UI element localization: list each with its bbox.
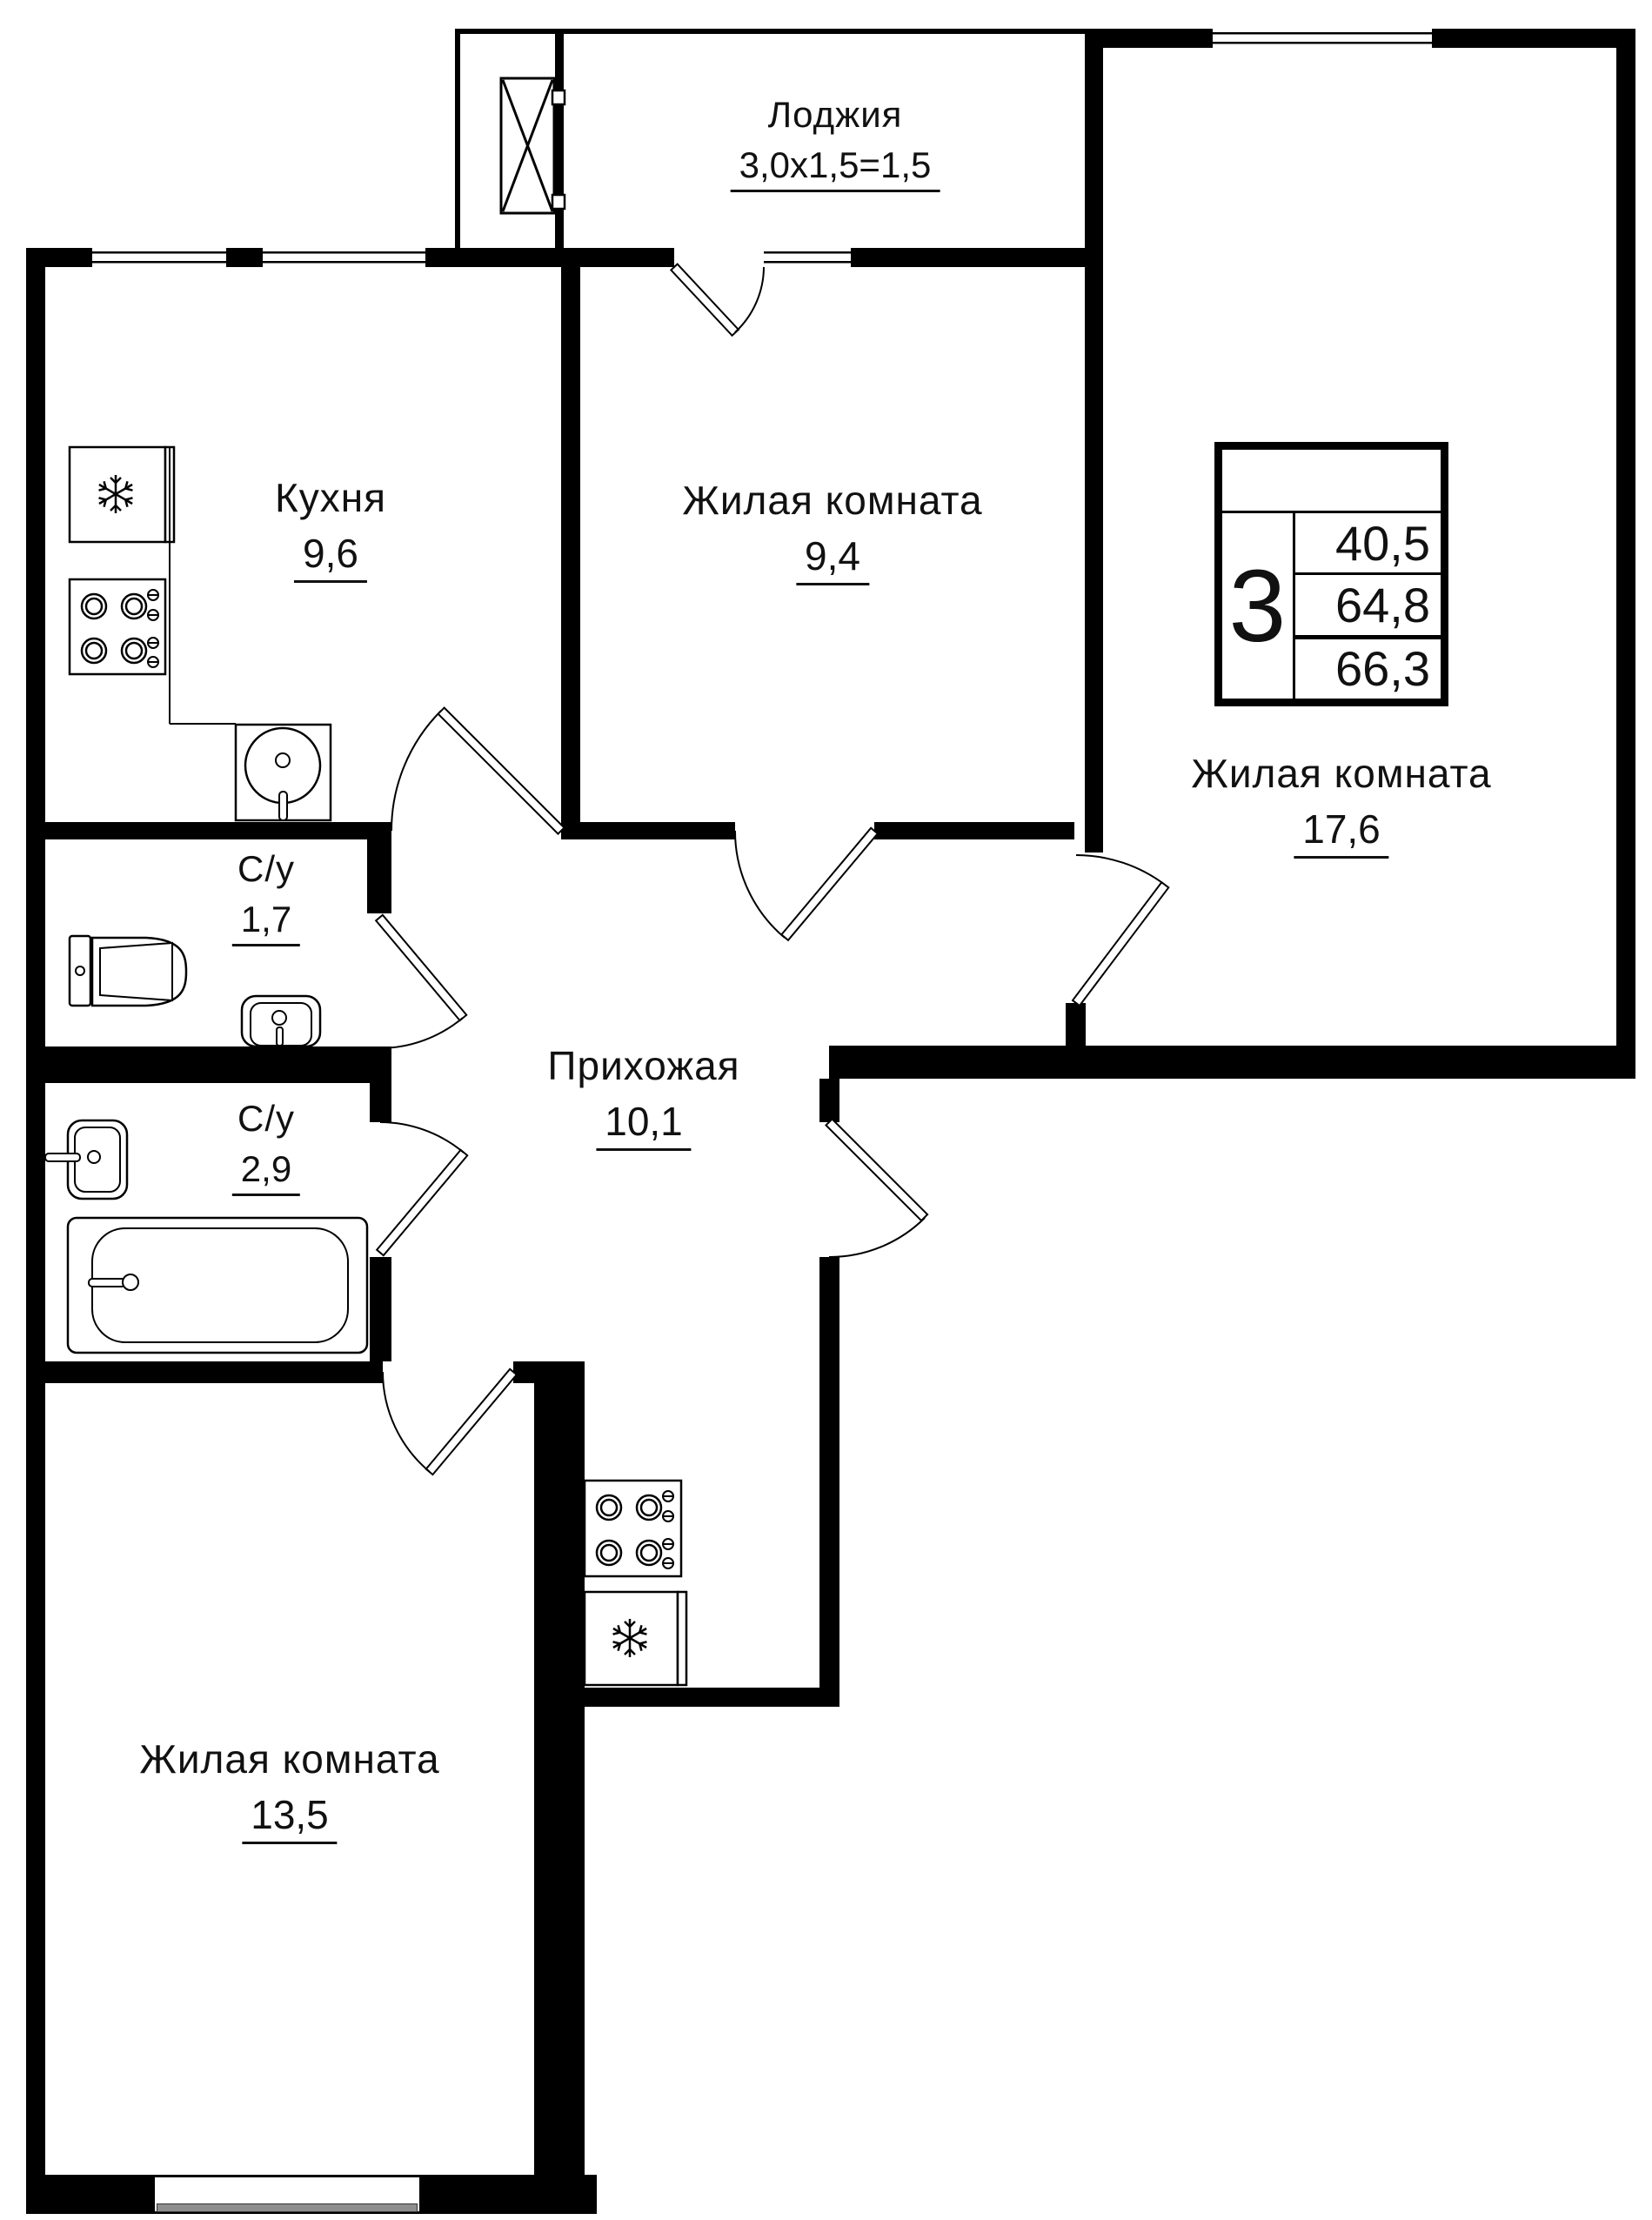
room-name: С/у	[232, 848, 300, 890]
room-label-wc-small: С/у 1,7	[232, 848, 300, 946]
door-leaf	[376, 264, 1168, 1475]
room-name: Лоджия	[731, 94, 940, 136]
kitchen-counter-line	[170, 447, 236, 724]
stats-living-area: 40,5	[1295, 513, 1441, 572]
room-area: 3,0х1,5=1,5	[731, 144, 940, 192]
room-label-hallway: Прихожая 10,1	[547, 1042, 739, 1151]
room-name: Жилая комната	[682, 477, 982, 524]
stats-total-area: 66,3	[1295, 635, 1441, 699]
room-area: 9,6	[294, 530, 367, 583]
room-label-wc-big: С/у 2,9	[232, 1098, 300, 1196]
stats-bottom: 3 40,5 64,8 66,3	[1222, 513, 1441, 699]
room-area: 13,5	[242, 1791, 338, 1844]
room-area: 9,4	[796, 532, 869, 585]
stats-room-count: 3	[1222, 513, 1295, 699]
stats-top-cell	[1222, 450, 1441, 513]
fridge-icon	[70, 447, 174, 542]
apartment-stats: 3 40,5 64,8 66,3	[1214, 442, 1448, 706]
room-area: 2,9	[232, 1148, 300, 1196]
shaft-icon	[501, 78, 565, 213]
room-label-loggia: Лоджия 3,0х1,5=1,5	[731, 94, 940, 192]
room-name: Кухня	[275, 474, 386, 521]
room-label-living-bottom: Жилая комната 13,5	[139, 1735, 439, 1844]
room-label-kitchen: Кухня 9,6	[275, 474, 386, 583]
stats-areas: 40,5 64,8 66,3	[1295, 513, 1441, 699]
room-name: Жилая комната	[1191, 750, 1491, 797]
room-label-living-top: Жилая комната 9,4	[682, 477, 982, 585]
stove-icon	[70, 579, 165, 674]
room-name: С/у	[232, 1098, 300, 1140]
room-name: Жилая комната	[139, 1735, 439, 1782]
room-area: 10,1	[596, 1098, 692, 1151]
room-area: 17,6	[1294, 806, 1389, 859]
fridge-icon	[585, 1592, 686, 1685]
door-arc	[379, 267, 1165, 1472]
bathtub-icon	[68, 1218, 367, 1353]
stove-icon	[585, 1481, 681, 1576]
floor-plan: Лоджия 3,0х1,5=1,5 Кухня 9,6 Жилая комна…	[0, 0, 1652, 2220]
washbasin-icon	[242, 996, 320, 1046]
stats-area-without-loggia: 64,8	[1295, 572, 1441, 634]
toilet-icon	[70, 936, 186, 1006]
room-name: Прихожая	[547, 1042, 739, 1089]
kitchen-sink-icon	[236, 725, 331, 820]
washbasin-icon	[45, 1120, 127, 1199]
room-label-living-right: Жилая комната 17,6	[1191, 750, 1491, 859]
room-area: 1,7	[232, 899, 300, 946]
